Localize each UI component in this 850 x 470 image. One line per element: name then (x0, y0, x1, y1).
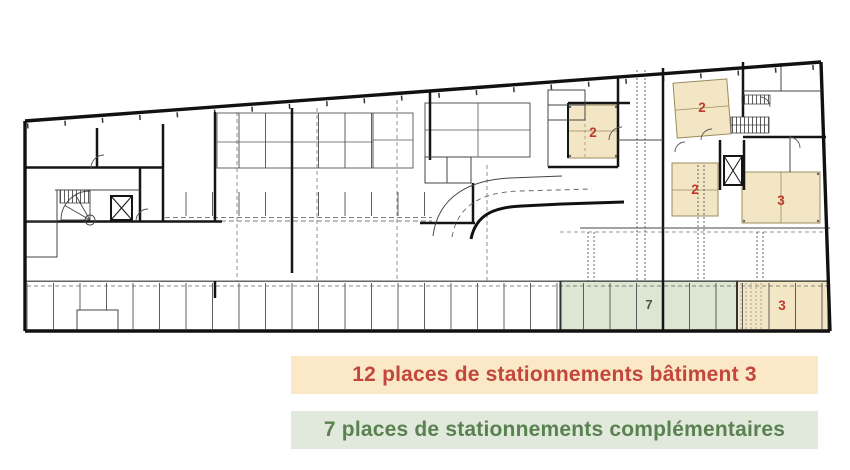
ramp (433, 176, 624, 239)
stairs-right (731, 95, 770, 133)
marker-batiment3-3b: 3 (778, 298, 786, 313)
storage-box (77, 310, 118, 331)
marker-batiment3-2c: 2 (691, 182, 699, 197)
legend-batiment3-label: 12 places de stationnements bâtiment 3 (352, 363, 756, 387)
straight-stair-left (60, 190, 90, 203)
legend-complementaire-label: 7 places de stationnements complémentair… (324, 418, 785, 442)
marker-batiment3-2b: 2 (698, 100, 706, 115)
floor-plan: 2 2 2 3 3 7 (0, 0, 850, 470)
marker-batiment3-2a: 2 (589, 125, 597, 140)
bottom-parking-band (25, 281, 830, 331)
parking-plan-page: 2 2 2 3 3 7 12 places de stationnements … (0, 0, 850, 470)
upper-parking-grids (165, 103, 530, 221)
elevator-right (724, 156, 742, 185)
legend-batiment3: 12 places de stationnements bâtiment 3 (291, 356, 818, 394)
elevator-left (111, 196, 132, 220)
legend-complementaire: 7 places de stationnements complémentair… (291, 411, 818, 449)
marker-complementaire-7: 7 (645, 297, 652, 312)
marker-batiment3-3a: 3 (777, 193, 785, 208)
